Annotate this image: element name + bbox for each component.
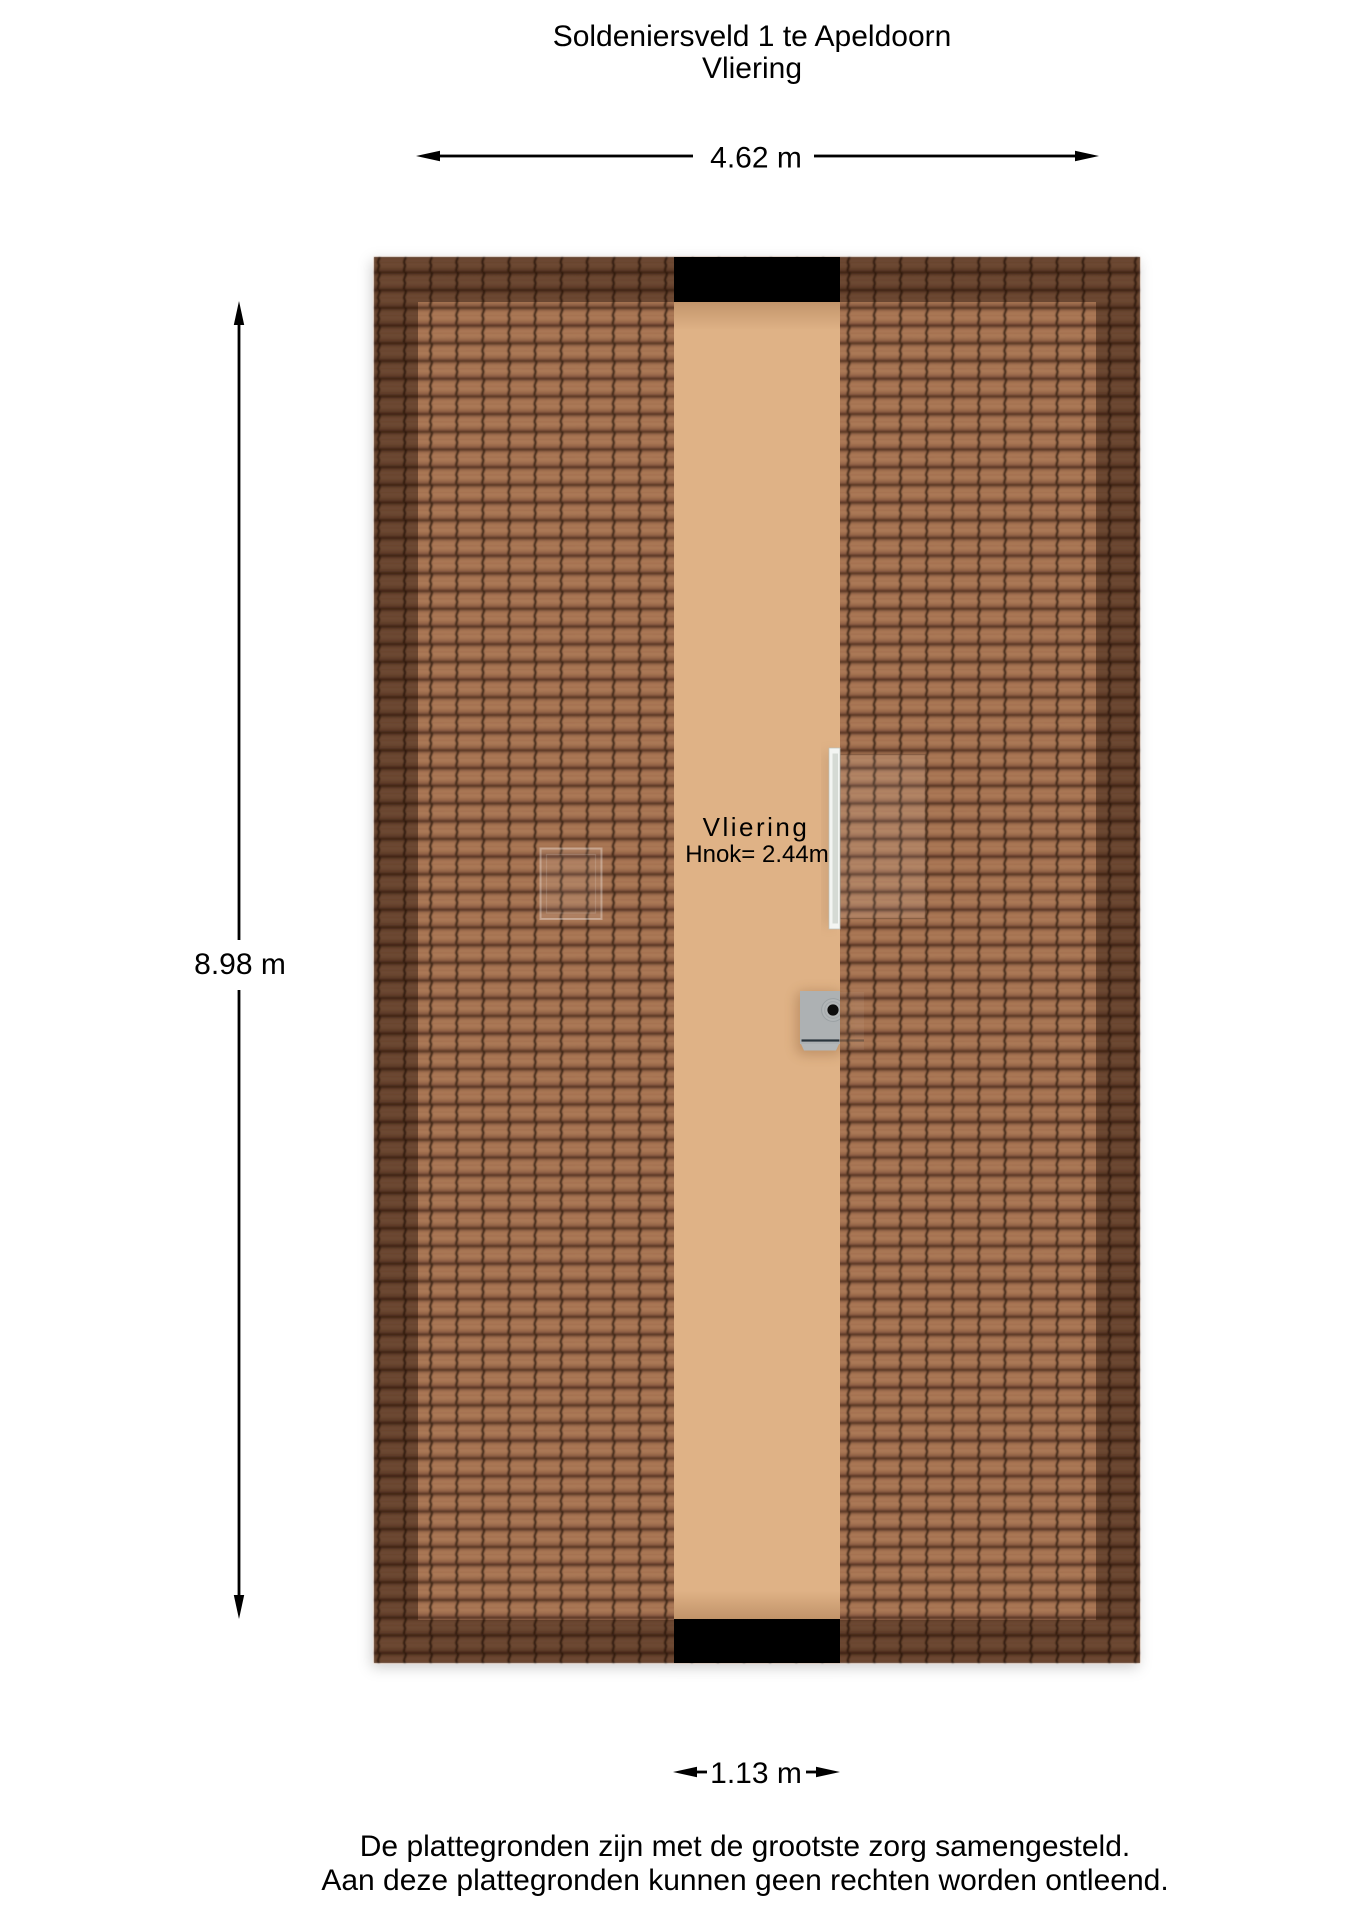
svg-text:8.98 m: 8.98 m — [194, 948, 286, 981]
svg-text:Hnok= 2.44m: Hnok= 2.44m — [685, 841, 828, 868]
svg-text:Vliering: Vliering — [702, 52, 802, 85]
svg-text:Vliering: Vliering — [703, 812, 810, 842]
svg-text:4.62 m: 4.62 m — [710, 142, 802, 175]
svg-text:De plattegronden zijn met de g: De plattegronden zijn met de grootste zo… — [360, 1830, 1130, 1863]
svg-text:Aan deze plattegronden kunnen: Aan deze plattegronden kunnen geen recht… — [321, 1864, 1168, 1897]
svg-text:1.13 m: 1.13 m — [710, 1757, 802, 1790]
svg-text:Soldeniersveld 1 te Apeldoorn: Soldeniersveld 1 te Apeldoorn — [553, 20, 952, 53]
